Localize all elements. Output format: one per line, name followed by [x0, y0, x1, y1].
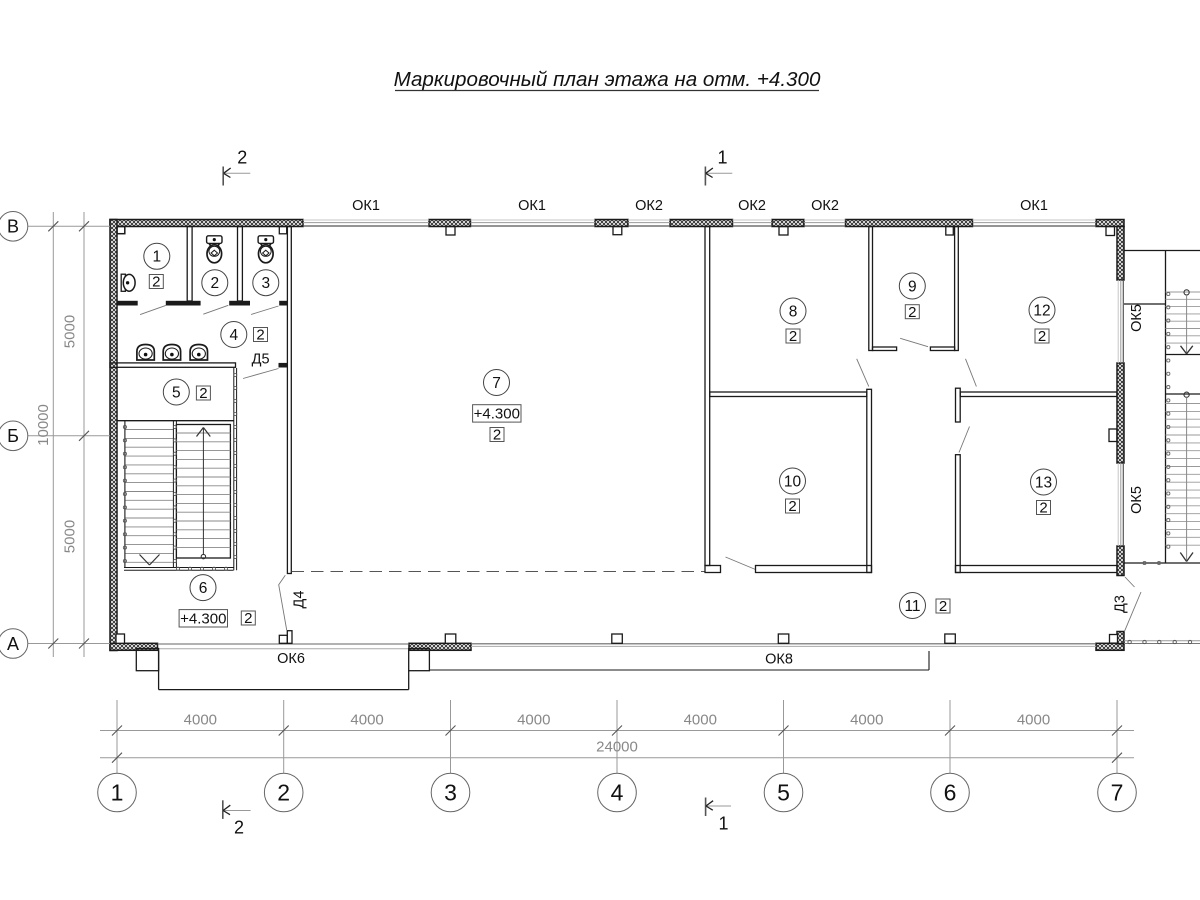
- svg-text:9: 9: [908, 278, 917, 295]
- svg-text:6: 6: [944, 780, 957, 806]
- svg-text:2: 2: [199, 385, 207, 402]
- svg-text:ОК5: ОК5: [1129, 304, 1145, 332]
- svg-text:5: 5: [172, 384, 181, 401]
- svg-text:А: А: [7, 634, 19, 654]
- svg-text:12: 12: [1033, 302, 1050, 319]
- svg-text:+4.300: +4.300: [474, 405, 520, 422]
- svg-text:13: 13: [1035, 474, 1052, 491]
- svg-text:2: 2: [277, 780, 290, 806]
- svg-text:1: 1: [152, 249, 161, 266]
- svg-text:4000: 4000: [184, 712, 217, 729]
- svg-text:ОК5: ОК5: [1129, 486, 1145, 514]
- svg-text:2: 2: [237, 148, 247, 168]
- svg-text:ОК2: ОК2: [635, 198, 663, 214]
- svg-text:Д5: Д5: [252, 352, 270, 368]
- svg-text:1: 1: [718, 814, 728, 834]
- svg-text:4000: 4000: [350, 712, 383, 729]
- svg-text:5000: 5000: [62, 315, 79, 348]
- svg-text:2: 2: [210, 275, 219, 292]
- svg-text:2: 2: [789, 328, 797, 345]
- svg-text:4: 4: [611, 780, 624, 806]
- svg-text:Б: Б: [7, 426, 19, 446]
- svg-text:2: 2: [234, 817, 244, 837]
- svg-text:1: 1: [717, 148, 727, 168]
- svg-text:2: 2: [256, 327, 264, 344]
- svg-text:ОК2: ОК2: [738, 198, 766, 214]
- svg-text:1: 1: [111, 780, 124, 806]
- svg-text:10: 10: [784, 473, 802, 490]
- svg-text:5: 5: [777, 780, 790, 806]
- svg-text:2: 2: [1039, 500, 1047, 517]
- svg-text:ОК2: ОК2: [811, 198, 839, 214]
- svg-text:Д3: Д3: [1113, 595, 1129, 613]
- svg-text:Д4: Д4: [292, 591, 308, 609]
- svg-text:4000: 4000: [517, 712, 550, 729]
- svg-text:ОК1: ОК1: [352, 198, 380, 214]
- svg-text:ОК1: ОК1: [1020, 198, 1048, 214]
- svg-text:2: 2: [908, 304, 916, 321]
- svg-text:ОК1: ОК1: [518, 198, 546, 214]
- svg-text:10000: 10000: [35, 404, 52, 446]
- svg-text:В: В: [7, 217, 19, 237]
- svg-text:7: 7: [492, 375, 501, 392]
- svg-text:ОК6: ОК6: [277, 651, 305, 667]
- svg-text:3: 3: [261, 275, 270, 292]
- svg-text:3: 3: [444, 780, 457, 806]
- svg-text:ОК8: ОК8: [765, 652, 793, 668]
- svg-text:5000: 5000: [62, 520, 79, 553]
- svg-text:4000: 4000: [850, 712, 883, 729]
- svg-text:2: 2: [244, 610, 252, 627]
- svg-text:2: 2: [939, 598, 947, 615]
- svg-text:24000: 24000: [596, 739, 638, 756]
- svg-text:8: 8: [789, 303, 798, 320]
- svg-text:Маркировочный план этажа на от: Маркировочный план этажа на отм. +4.300: [394, 68, 821, 91]
- svg-text:4: 4: [229, 327, 238, 344]
- svg-text:4000: 4000: [1017, 712, 1050, 729]
- svg-text:2: 2: [1038, 328, 1046, 345]
- svg-text:2: 2: [493, 427, 501, 444]
- svg-text:11: 11: [904, 598, 920, 615]
- svg-text:2: 2: [152, 274, 160, 291]
- svg-text:6: 6: [199, 580, 208, 597]
- svg-text:7: 7: [1111, 780, 1124, 806]
- svg-text:+4.300: +4.300: [180, 610, 226, 627]
- svg-text:2: 2: [788, 498, 796, 515]
- svg-text:4000: 4000: [684, 712, 717, 729]
